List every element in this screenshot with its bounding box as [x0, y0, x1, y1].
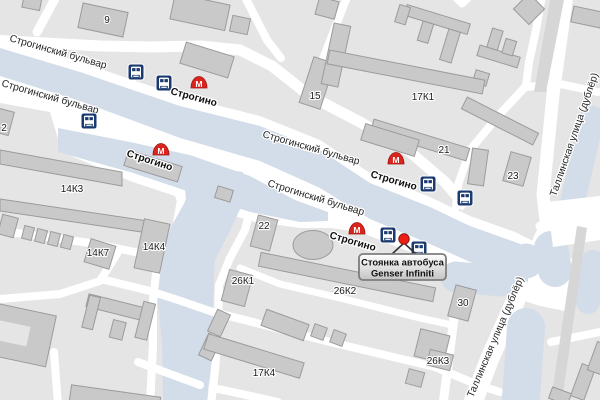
svg-text:М: М [392, 155, 399, 165]
svg-text:М: М [353, 225, 360, 235]
svg-text:Стоянка автобуса: Стоянка автобуса [361, 257, 445, 268]
svg-text:2: 2 [1, 123, 7, 134]
svg-text:26К2: 26К2 [334, 286, 357, 297]
svg-text:М: М [195, 79, 202, 89]
svg-text:21: 21 [438, 145, 450, 156]
svg-text:26К3: 26К3 [427, 356, 450, 367]
svg-text:15: 15 [309, 91, 321, 102]
svg-text:22: 22 [258, 221, 270, 232]
svg-text:М: М [157, 146, 164, 156]
svg-text:30: 30 [457, 298, 469, 309]
svg-text:23: 23 [507, 171, 519, 182]
svg-text:Genser Infiniti: Genser Infiniti [371, 268, 434, 279]
svg-text:14К3: 14К3 [61, 184, 84, 195]
svg-text:14К7: 14К7 [87, 248, 110, 259]
svg-text:14К4: 14К4 [143, 242, 166, 253]
svg-text:9: 9 [104, 15, 110, 26]
svg-text:26К1: 26К1 [232, 276, 255, 287]
svg-text:17К1: 17К1 [412, 92, 435, 103]
svg-text:17К4: 17К4 [253, 368, 276, 379]
